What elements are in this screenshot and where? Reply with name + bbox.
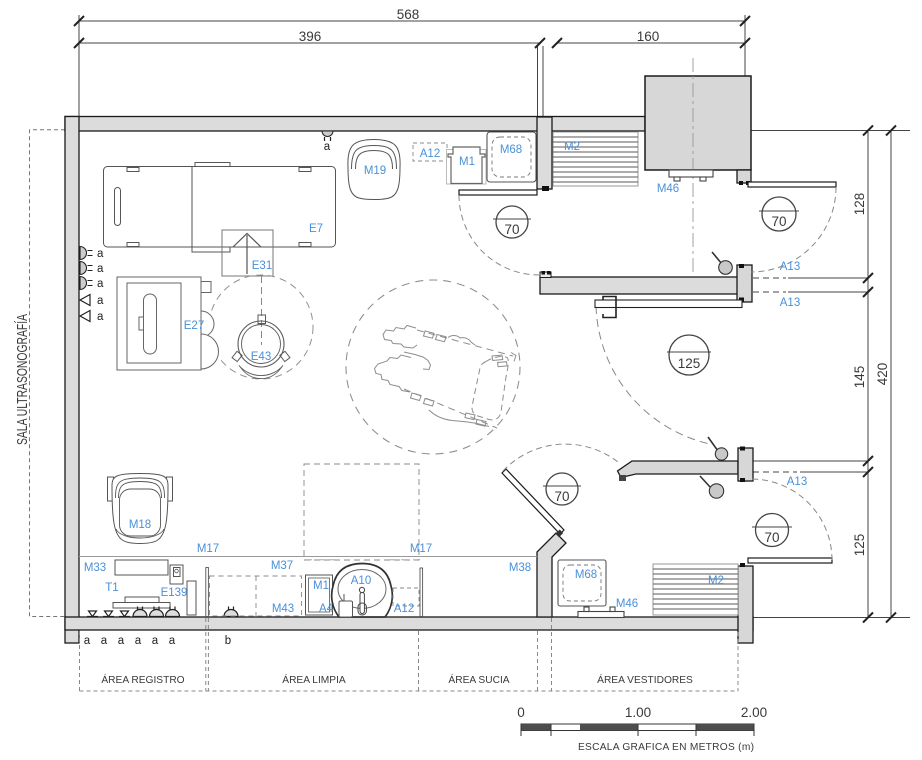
svg-text:A10: A10 (351, 575, 371, 587)
svg-text:a: a (97, 311, 104, 323)
svg-text:M46: M46 (616, 598, 638, 610)
svg-text:M43: M43 (272, 603, 294, 615)
svg-text:1.00: 1.00 (625, 705, 651, 720)
svg-text:128: 128 (852, 193, 867, 216)
svg-text:a: a (152, 635, 159, 647)
svg-text:a: a (169, 635, 176, 647)
svg-text:a: a (97, 248, 104, 260)
svg-text:ÁREA SUCIA: ÁREA SUCIA (448, 673, 509, 686)
svg-text:a: a (101, 635, 108, 647)
svg-text:ÁREA REGISTRO: ÁREA REGISTRO (101, 673, 184, 686)
svg-text:396: 396 (299, 29, 322, 44)
svg-text:M17: M17 (197, 543, 219, 555)
svg-text:ESCALA GRAFICA EN METROS (m): ESCALA GRAFICA EN METROS (m) (578, 742, 754, 753)
svg-text:M17: M17 (410, 543, 432, 555)
svg-text:E139: E139 (161, 587, 188, 599)
svg-text:145: 145 (852, 366, 867, 389)
svg-text:ÁREA LIMPIA: ÁREA LIMPIA (282, 673, 346, 686)
svg-text:M68: M68 (575, 569, 597, 581)
svg-text:a: a (97, 295, 104, 307)
svg-text:ÁREA VESTIDORES: ÁREA VESTIDORES (597, 673, 693, 686)
svg-text:A12: A12 (420, 148, 440, 160)
svg-text:M37: M37 (271, 560, 293, 572)
svg-text:M1: M1 (313, 580, 329, 592)
svg-text:a: a (97, 278, 104, 290)
svg-text:70: 70 (504, 222, 519, 237)
svg-text:70: 70 (764, 530, 779, 545)
svg-text:a: a (118, 635, 125, 647)
svg-text:M18: M18 (129, 519, 151, 531)
svg-text:E31: E31 (252, 260, 272, 272)
svg-text:160: 160 (637, 29, 660, 44)
svg-text:E43: E43 (251, 351, 271, 363)
svg-text:M46: M46 (657, 183, 679, 195)
svg-text:E27: E27 (184, 320, 204, 332)
svg-text:SALA ULTRASONOGRAFÍA: SALA ULTRASONOGRAFÍA (14, 314, 31, 445)
svg-text:A13: A13 (780, 261, 800, 273)
svg-text:a: a (324, 141, 331, 153)
svg-text:b: b (225, 635, 231, 647)
svg-text:M38: M38 (509, 562, 531, 574)
svg-text:M2: M2 (708, 575, 724, 587)
svg-text:70: 70 (771, 214, 786, 229)
svg-text:E7: E7 (309, 223, 323, 235)
svg-text:M33: M33 (84, 562, 106, 574)
svg-text:a: a (84, 635, 91, 647)
svg-text:A12: A12 (394, 603, 414, 615)
svg-text:125: 125 (678, 356, 701, 371)
svg-text:T1: T1 (105, 582, 118, 594)
svg-text:568: 568 (397, 7, 420, 22)
svg-text:A4: A4 (319, 603, 334, 615)
svg-text:a: a (97, 263, 104, 275)
svg-text:2.00: 2.00 (741, 705, 767, 720)
svg-text:M1: M1 (459, 156, 475, 168)
svg-text:M68: M68 (500, 144, 522, 156)
svg-text:0: 0 (517, 705, 525, 720)
svg-text:a: a (135, 635, 142, 647)
svg-text:420: 420 (875, 363, 890, 386)
svg-text:125: 125 (852, 534, 867, 557)
svg-text:70: 70 (554, 489, 569, 504)
svg-text:A13: A13 (787, 476, 807, 488)
svg-text:M2: M2 (564, 141, 580, 153)
svg-text:M19: M19 (364, 165, 386, 177)
svg-text:A13: A13 (780, 297, 800, 309)
